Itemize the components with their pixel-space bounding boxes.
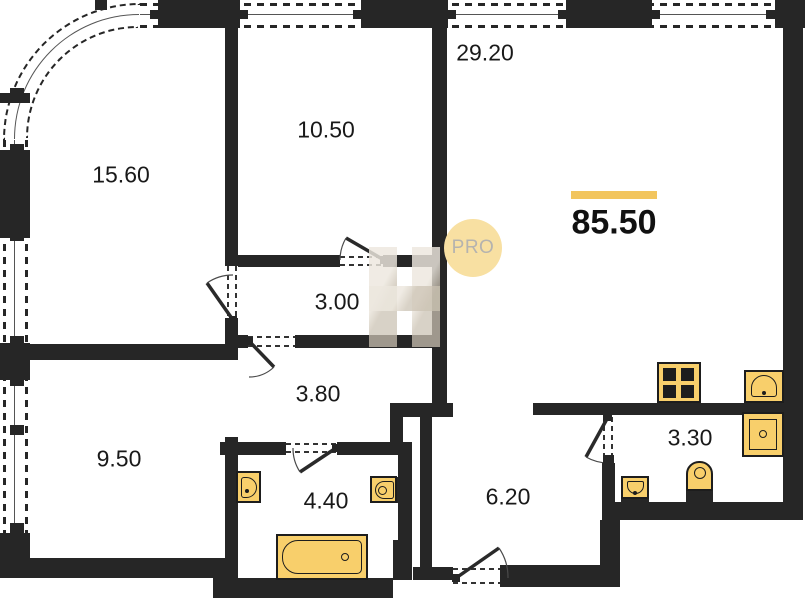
wall-segment (607, 502, 803, 520)
door-opening (235, 266, 237, 318)
wall-segment (558, 10, 566, 19)
entrance-opening (453, 582, 500, 584)
wall-sink-right-icon (370, 476, 397, 503)
wall-segment (10, 88, 24, 96)
wall-segment (225, 437, 238, 578)
total-area-accent-bar (571, 191, 657, 199)
wall-segment (238, 255, 340, 267)
toilet-icon (686, 461, 713, 491)
wall-segment (10, 232, 24, 241)
kitchen-sink-icon (744, 370, 784, 403)
door-opening (611, 417, 613, 463)
floor-plan: 29.20 10.50 15.60 3.00 3.80 9.50 4.40 6.… (0, 0, 805, 600)
door-opening (227, 266, 229, 318)
pro-badge: PRO (444, 219, 502, 277)
stove-icon (657, 362, 701, 403)
wall-segment (600, 520, 620, 587)
wall-segment (240, 10, 248, 19)
wall-sink-left-icon (236, 471, 261, 503)
wall-segment (95, 0, 107, 10)
corner-window-glass-arc (14, 14, 139, 139)
wall-segment (775, 0, 805, 28)
room-area-label: 15.60 (92, 162, 150, 189)
room-area-label: 6.20 (486, 484, 531, 511)
wall-segment (390, 417, 403, 442)
wall-segment (353, 10, 361, 19)
door-opening (603, 417, 605, 463)
wall-segment (10, 144, 24, 152)
wall-segment (783, 26, 803, 520)
wall-segment (432, 26, 447, 417)
wall-segment (225, 26, 238, 266)
door-opening (248, 336, 295, 338)
total-area-label: 85.50 (571, 204, 656, 243)
small-sink-icon (621, 476, 649, 499)
door-opening (286, 451, 337, 453)
wall-segment (361, 0, 448, 28)
entrance-opening (453, 568, 500, 570)
wall-segment (448, 10, 456, 19)
wall-segment (393, 540, 412, 580)
room-area-label: 4.40 (304, 488, 349, 515)
room-area-label: 29.20 (456, 40, 514, 67)
room-area-label: 10.50 (297, 117, 355, 144)
bathtub-icon (276, 534, 368, 580)
wall-segment (10, 523, 24, 533)
wall-segment (0, 150, 30, 238)
wall-segment (766, 10, 776, 19)
wall-segment (8, 558, 238, 578)
door-opening (286, 443, 337, 445)
wall-segment (158, 0, 240, 28)
room-area-label: 3.00 (315, 289, 360, 316)
wall-segment (18, 344, 238, 360)
wall-segment (150, 10, 158, 19)
wall-segment (10, 378, 24, 386)
wall-segment (10, 425, 24, 435)
square-sink-icon (742, 412, 784, 457)
wall-segment (225, 335, 248, 348)
wall-segment (420, 417, 432, 567)
wall-segment (390, 403, 453, 417)
room-area-label: 3.80 (296, 381, 341, 408)
room-area-label: 3.30 (668, 425, 713, 452)
wall-segment (413, 567, 453, 580)
wall-segment (500, 565, 607, 587)
door-opening (248, 345, 295, 347)
wall-segment (566, 0, 652, 28)
wall-segment (652, 10, 660, 19)
wall-segment (337, 442, 412, 455)
room-area-label: 9.50 (97, 446, 142, 473)
wall-segment (213, 578, 393, 598)
